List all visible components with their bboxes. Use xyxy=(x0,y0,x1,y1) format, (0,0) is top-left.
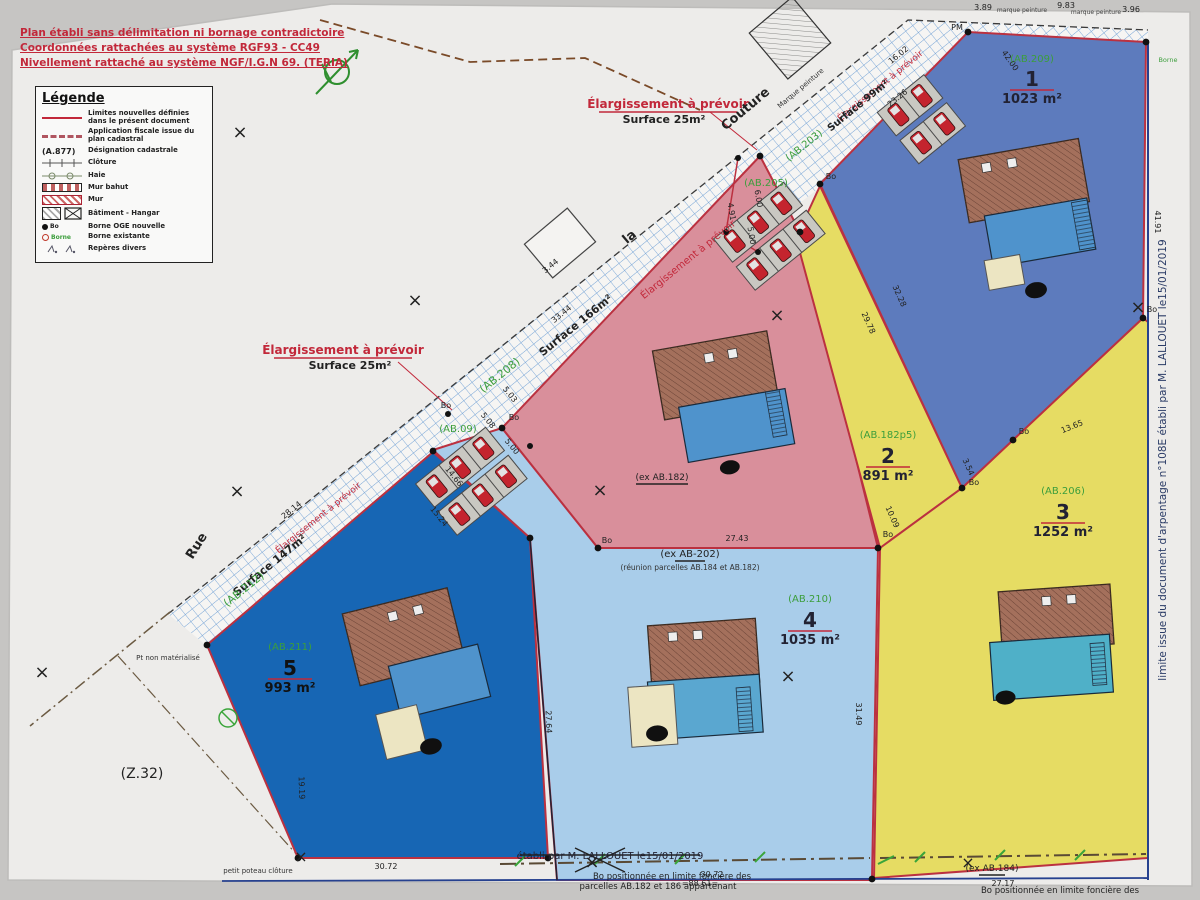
measure: 3.89 xyxy=(974,3,992,12)
lot5-area: 993 m² xyxy=(265,681,316,696)
borne-symbol-text: Borne xyxy=(51,234,71,241)
x-mark: × xyxy=(294,847,307,866)
hedge-icon xyxy=(42,171,88,181)
legend-row-hedge: Haie xyxy=(42,171,206,181)
window xyxy=(981,162,991,172)
bo-label: Bo xyxy=(1019,427,1029,436)
x-mark: × xyxy=(407,290,422,311)
borne-oge-icon: Bo xyxy=(42,223,88,230)
ref-z32: (Z.32) xyxy=(121,766,164,782)
legend-row-cadastral-ref: (A.877) Désignation cadastrale xyxy=(42,147,206,156)
note-pt-non-materialise: Pt non matérialisé xyxy=(136,654,200,662)
legend-label: Haie xyxy=(88,172,105,180)
borne-existante-icon: Borne xyxy=(42,234,88,241)
window xyxy=(693,630,703,640)
legend-label: Désignation cadastrale xyxy=(88,147,178,155)
x-mark: × xyxy=(229,481,244,502)
house-lot3 xyxy=(986,584,1118,705)
margin-right-note: limite issue du document d'arpentage n°1… xyxy=(1157,239,1169,680)
legend-label: Borne existante xyxy=(88,233,150,241)
measure: 27.43 xyxy=(726,534,749,543)
bo-label: Bo xyxy=(441,401,451,410)
legend-label: Mur xyxy=(88,196,103,204)
legend-label: Repères divers xyxy=(88,245,146,253)
x-mark: × xyxy=(1130,297,1145,318)
plan-note-line: Coordonnées rattachées au système RGF93 … xyxy=(20,41,320,56)
window xyxy=(1067,594,1077,604)
fence-icon xyxy=(42,158,88,168)
garage xyxy=(984,254,1025,290)
lot1-area: 1023 m² xyxy=(1002,92,1062,107)
window xyxy=(413,605,424,616)
bo-label: Bo xyxy=(883,530,893,539)
ref-ex-ab202: (ex AB-202) xyxy=(660,549,719,560)
plan-note-line: Nivellement rattaché au système NGF/I.G.… xyxy=(20,56,320,71)
window xyxy=(1007,158,1017,168)
lot4-number: 4 xyxy=(803,608,817,632)
measure: 27.64 xyxy=(544,710,554,733)
measure: 41.91 xyxy=(1153,211,1162,234)
legend-label: Application fiscale issue du plan cadast… xyxy=(88,128,206,144)
legend-label: Mur bahut xyxy=(88,184,128,192)
x-mark: × xyxy=(592,480,607,501)
bo-label: Bo xyxy=(969,478,979,487)
lot1-ref: (AB.209) xyxy=(1010,54,1054,65)
window xyxy=(704,353,714,363)
note-surface25-top: Surface 25m² xyxy=(623,113,706,126)
legend-label: Limites nouvelles définies dans le prése… xyxy=(88,110,206,126)
borne-label: Borne xyxy=(1158,56,1177,64)
legend-box: Légende Limites nouvelles définies dans … xyxy=(35,86,213,263)
x-mark: × xyxy=(34,662,49,683)
legend-row-fence: Clôture xyxy=(42,158,206,168)
ref-ab205: (AB.205) xyxy=(744,178,788,189)
lot2-area: 891 m² xyxy=(863,469,914,484)
lot4-area: 1035 m² xyxy=(780,633,840,648)
measure: 30.72 xyxy=(375,862,398,871)
plan-note-line: Plan établi sans délimitation ni bornage… xyxy=(20,26,320,41)
window xyxy=(727,348,737,358)
note-petit-poteau: petit poteau clôture xyxy=(223,867,292,875)
legend-label: Borne OGE nouvelle xyxy=(88,223,165,231)
lot3-ref: (AB.206) xyxy=(1041,486,1085,497)
window xyxy=(668,632,678,642)
measure: 31.49 xyxy=(854,703,863,726)
legend-title: Légende xyxy=(42,91,206,106)
x-mark: × xyxy=(769,305,784,326)
legend-label: Bâtiment - Hangar xyxy=(88,210,160,218)
x-mark: × xyxy=(780,666,795,687)
terrace xyxy=(1090,643,1107,686)
fiscal-line-icon xyxy=(42,135,88,138)
window xyxy=(387,611,398,622)
bo-label: Bo xyxy=(509,413,519,422)
legend-row-building: Bâtiment - Hangar xyxy=(42,207,206,220)
lot1-number: 1 xyxy=(1025,67,1039,91)
legend-row-new-marker: Bo Borne OGE nouvelle xyxy=(42,223,206,231)
legend-row-low-wall: Mur bahut xyxy=(42,183,206,192)
legend-row-new-limits: Limites nouvelles définies dans le prése… xyxy=(42,110,206,126)
measure: 9.83 xyxy=(1057,1,1075,10)
lot5-ref: (AB.211) xyxy=(268,642,312,653)
note-marque-peinture: marque peinture xyxy=(997,7,1048,14)
note-elargissement-left: Élargissement à prévoir xyxy=(262,342,424,357)
legend-row-wall: Mur xyxy=(42,195,206,205)
legend-row-existing-marker: Borne Borne existante xyxy=(42,233,206,241)
cadastral-ref-sample: (A.877) xyxy=(42,147,88,156)
legend-label: Clôture xyxy=(88,159,116,167)
pm-mark: PM xyxy=(951,23,963,32)
note-elargissement-top: Élargissement à prévoir xyxy=(587,96,749,111)
lot4-ref: (AB.210) xyxy=(788,594,832,605)
lot3-number: 3 xyxy=(1056,500,1070,524)
plan-notes: Plan établi sans délimitation ni bornage… xyxy=(20,26,320,72)
note-reunion: (réunion parcelles AB.184 et AB.182) xyxy=(620,563,759,572)
x-mark: × xyxy=(232,122,247,143)
lot2-ref: (AB.182p5) xyxy=(860,430,917,441)
note-marque-peinture: marque peinture xyxy=(1071,9,1122,16)
new-limit-line-icon xyxy=(42,117,88,119)
note-bo-position-1b: parcelles AB.182 et 186 appartenant xyxy=(580,882,738,892)
x-mark: × xyxy=(961,853,974,872)
wall-icon xyxy=(42,195,88,205)
note-bo-position-2: Bo positionnée en limite foncière des xyxy=(981,885,1140,896)
window xyxy=(1042,596,1052,606)
bo-label: Bo xyxy=(826,172,836,181)
low-wall-icon xyxy=(42,183,88,192)
legend-row-fiscal: Application fiscale issue du plan cadast… xyxy=(42,128,206,144)
bo-label: Bo xyxy=(602,536,612,545)
cadastral-ref-text: (A.877) xyxy=(42,147,75,156)
lot5-number: 5 xyxy=(283,656,297,680)
legend-row-misc: Repères divers xyxy=(42,244,206,254)
note-bo-position-1: Bo positionnée en limite foncière des xyxy=(593,871,752,882)
x-mark: × xyxy=(584,852,599,873)
bo-label: Bo xyxy=(1147,305,1157,314)
measure: 3.96 xyxy=(1122,5,1140,14)
lot2-number: 2 xyxy=(881,444,895,468)
plan-photo: Élargissement à prévoirSurface 25m²Élarg… xyxy=(0,0,1200,900)
terrace xyxy=(736,687,753,732)
note-surface25-left: Surface 25m² xyxy=(309,359,392,372)
bo-symbol-text: Bo xyxy=(50,223,59,230)
measure: 19.19 xyxy=(297,776,307,799)
note-etabli: établi par M. LALLOUET le15/01/2019 xyxy=(517,850,704,862)
building-hangar-icon xyxy=(42,207,88,220)
ref-ex-ab182: (ex AB.182) xyxy=(636,473,689,483)
misc-marks-icon xyxy=(42,244,88,254)
lot3-area: 1252 m² xyxy=(1033,525,1093,540)
ref-ab09: (AB.09) xyxy=(439,424,477,435)
